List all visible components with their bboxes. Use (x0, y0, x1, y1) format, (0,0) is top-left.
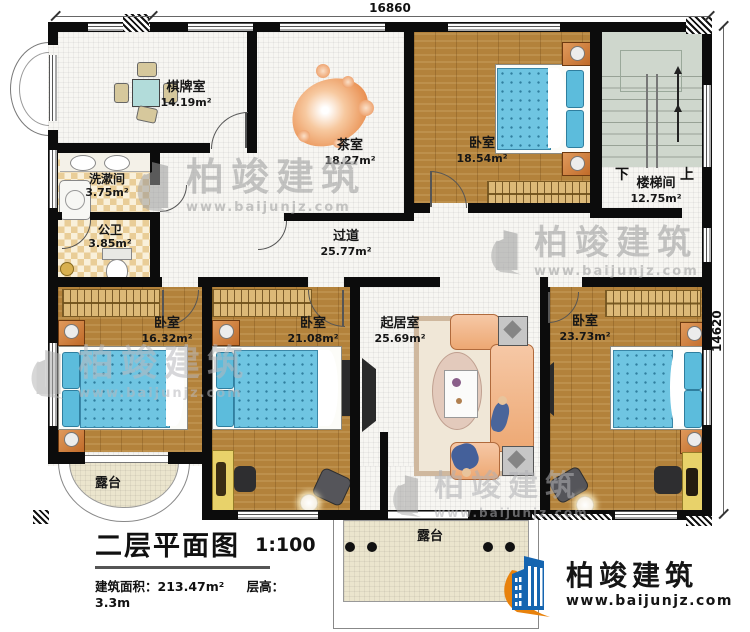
door-leaf (430, 171, 432, 207)
desk-chair (234, 466, 256, 492)
pillow (566, 110, 584, 148)
room-area: 16.32m² (122, 332, 212, 345)
room-name: 卧室 (268, 316, 358, 332)
terrace-label: 露台 (385, 529, 475, 545)
bed-mattress (80, 350, 170, 428)
room-area: 21.08m² (268, 332, 358, 345)
corner-hatch (33, 510, 49, 524)
corner-hatch (686, 516, 712, 526)
wall (590, 22, 602, 218)
sliding-door (85, 455, 168, 463)
room-name: 卧室 (540, 314, 630, 330)
brand-logo: 柏竣建筑 www.baijunjz.com (500, 552, 733, 618)
stair-arrow-stem2 (677, 112, 679, 142)
desk-items (216, 462, 226, 496)
room-label-living: 起居室 25.69m² (355, 316, 445, 345)
lamp-knob (687, 432, 702, 447)
pillow (684, 352, 702, 390)
title-rule (95, 566, 270, 569)
room-label-chess: 棋牌室 14.19m² (141, 80, 231, 109)
wall (540, 277, 548, 287)
title-block: 二层平面图 1:100 建筑面积：213.47m² 层高：3.3m (95, 524, 325, 610)
room-label-bedroom-top: 卧室 18.54m² (437, 136, 527, 165)
wall (404, 22, 414, 221)
nightstand (562, 152, 592, 176)
terrace-column (505, 542, 515, 552)
plan-scale: 1:100 (255, 534, 315, 556)
tea-art-dot (358, 100, 374, 116)
tea-art-dot (316, 64, 330, 78)
wall (247, 22, 257, 153)
bed-sheet (548, 68, 566, 148)
wall (582, 277, 712, 287)
floor-plan: 棋牌室 14.19m² 茶室 18.27m² 卧室 18.54m² 楼梯间 12… (0, 0, 750, 632)
wall (90, 212, 150, 220)
window (615, 511, 677, 519)
room-label-bedroom-mid: 卧室 21.08m² (268, 316, 358, 345)
room-area: 18.27m² (305, 154, 395, 167)
wardrobe (62, 289, 160, 317)
wall (596, 208, 682, 218)
sliding-door (388, 511, 468, 519)
window (238, 511, 318, 519)
window (49, 343, 57, 426)
tea-art-dot (342, 76, 354, 88)
lamp-knob (687, 326, 702, 341)
chess-chair (137, 62, 157, 77)
coffee-table-cup (456, 398, 462, 404)
pillow (566, 70, 584, 108)
room-area: 25.69m² (355, 332, 445, 345)
brand-url: www.baijunjz.com (566, 593, 733, 609)
room-name: 洗漱间 (62, 172, 152, 186)
corner-hatch (532, 514, 612, 520)
bed-mattress (234, 350, 318, 428)
building-area: 建筑面积：213.47m² (95, 579, 224, 594)
lamp-knob (64, 324, 79, 339)
stair-up-label: 上 (672, 164, 702, 184)
nightstand (58, 320, 85, 346)
wall (380, 432, 388, 516)
terrace-column (367, 542, 377, 552)
window (448, 23, 560, 31)
room-label-corridor: 过道 25.77m² (301, 229, 391, 258)
door-leaf (245, 112, 247, 148)
wardrobe (605, 290, 701, 317)
window (188, 23, 253, 31)
bed-sheet (166, 350, 184, 426)
lamp-knob (64, 432, 79, 447)
room-name: 卧室 (122, 316, 212, 332)
room-label-washroom: 洗漱间 3.75m² (62, 172, 152, 200)
dimension-line-top (55, 16, 710, 17)
wall (48, 143, 210, 153)
nightstand (212, 320, 240, 346)
brand-text: 柏竣建筑 www.baijunjz.com (566, 562, 733, 609)
corner-hatch (686, 16, 712, 34)
plan-title: 二层平面图 (95, 524, 240, 563)
window (703, 85, 711, 167)
window (703, 350, 711, 425)
coffee-table-flowers (452, 378, 461, 387)
sink (70, 155, 96, 171)
room-name: 过道 (301, 229, 391, 245)
bed-mattress (613, 350, 673, 428)
plan-meta: 建筑面积：213.47m² 层高：3.3m (95, 576, 325, 610)
floor-drain (60, 262, 74, 276)
room-area: 23.73m² (540, 330, 630, 343)
tv (342, 360, 350, 416)
pillow (62, 390, 80, 427)
room-area: 3.75m² (62, 186, 152, 199)
window (703, 228, 711, 262)
pillow (62, 352, 80, 389)
room-area: 18.54m² (437, 152, 527, 165)
wall (344, 277, 440, 287)
wall (468, 203, 602, 213)
bed-sheet (670, 350, 684, 426)
terrace-column (345, 542, 355, 552)
person-head (498, 396, 507, 405)
bed-sheet (318, 350, 338, 426)
dresser-items (686, 468, 698, 496)
wall (284, 213, 414, 221)
window (280, 23, 385, 31)
window (49, 55, 57, 121)
wall (48, 22, 58, 45)
brand-logo-icon (500, 552, 558, 618)
lamp-knob (570, 156, 585, 171)
dimension-width: 16860 (340, 1, 440, 15)
room-name: 棋牌室 (141, 80, 231, 96)
stair-arrow-stem (677, 74, 679, 106)
sink (104, 155, 130, 171)
room-label-toilet: 公卫 3.85m² (65, 223, 155, 251)
pillow (684, 390, 702, 428)
room-name: 卧室 (437, 136, 527, 152)
room-area: 25.77m² (301, 245, 391, 258)
room-area: 14.19m² (141, 96, 231, 109)
nightstand (58, 428, 85, 454)
tv (362, 358, 376, 432)
sofa (490, 344, 534, 452)
room-label-tea: 茶室 18.27m² (305, 138, 395, 167)
room-area: 12.75m² (611, 192, 701, 205)
brand-name: 柏竣建筑 (566, 562, 733, 590)
wall (48, 277, 162, 287)
stair-down-label: 下 (607, 164, 637, 184)
room-name: 茶室 (305, 138, 395, 154)
coffee-table (444, 370, 478, 418)
room-label-bedroom-right: 卧室 23.73m² (540, 314, 630, 343)
nightstand (562, 42, 592, 66)
lamp-knob (219, 324, 234, 339)
wardrobe (212, 289, 312, 317)
person-head (462, 468, 471, 477)
chess-chair (114, 83, 129, 103)
room-label-bedroom-left: 卧室 16.32m² (122, 316, 212, 345)
stair-arrow-head2 (674, 104, 682, 112)
dimension-height: 14620 (710, 268, 726, 352)
stair-arrow-head (674, 66, 682, 74)
lamp-knob (570, 46, 585, 61)
pillow (216, 390, 234, 427)
room-name: 起居室 (355, 316, 445, 332)
room-area: 3.85m² (65, 237, 155, 250)
wall (198, 277, 308, 287)
stair-rail (646, 74, 658, 168)
pillow (216, 352, 234, 389)
terrace-label: 露台 (63, 476, 153, 492)
terrace-column (483, 542, 493, 552)
room-name: 公卫 (65, 223, 155, 237)
chair (654, 466, 682, 494)
window (49, 150, 57, 208)
